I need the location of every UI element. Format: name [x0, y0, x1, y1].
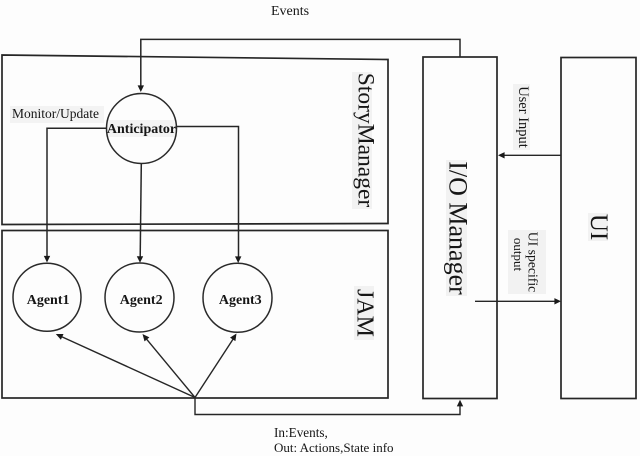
svg-text:Anticipator: Anticipator: [107, 122, 176, 137]
svg-text:Agent2: Agent2: [120, 293, 163, 308]
svg-text:User Input: User Input: [515, 86, 531, 148]
svg-text:I/O Manager: I/O Manager: [444, 161, 473, 295]
svg-text:UI: UI: [585, 214, 612, 240]
svg-text:output: output: [511, 238, 526, 272]
svg-text:StoryManager: StoryManager: [353, 73, 379, 208]
svg-text:Agent1: Agent1: [27, 293, 70, 308]
svg-text:Out: Actions,State info: Out: Actions,State info: [274, 440, 394, 455]
svg-text:In:Events,: In:Events,: [274, 425, 328, 440]
svg-text:Monitor/Update: Monitor/Update: [12, 106, 99, 121]
svg-text:Agent3: Agent3: [219, 293, 262, 308]
svg-text:UI specific: UI specific: [526, 232, 541, 292]
svg-text:Events: Events: [271, 4, 309, 19]
svg-text:JAM: JAM: [352, 289, 378, 337]
